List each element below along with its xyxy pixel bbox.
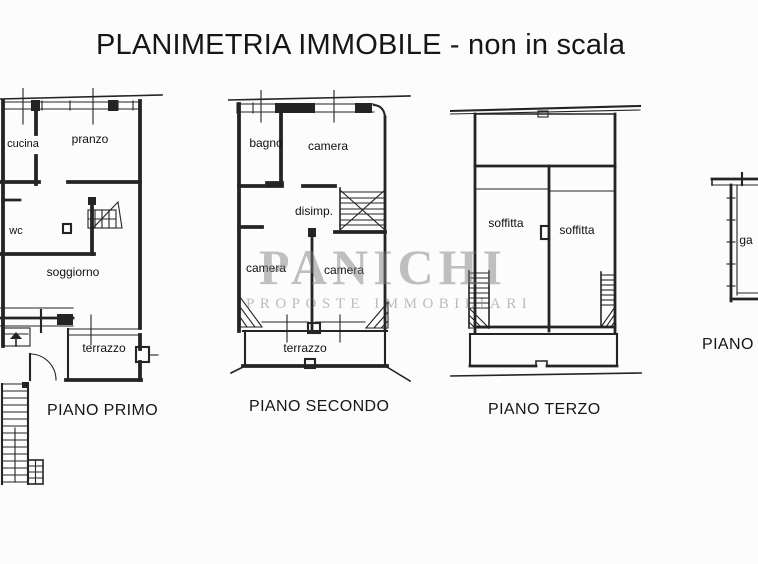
room-label-garage-partial: ga: [739, 233, 753, 247]
room-label-terrazzo-2: terrazzo: [283, 341, 327, 355]
window-band: [4, 88, 140, 124]
floor-plan-piano-primo: cucina pranzo wc soggiorno terrazzo: [0, 88, 168, 490]
room-label-soffitta-left: soffitta: [488, 216, 523, 230]
room-label-soggiorno: soggiorno: [47, 265, 100, 279]
external-staircase: [2, 382, 43, 484]
floor-label-piano-secondo: PIANO SECONDO: [249, 398, 389, 416]
room-label-cucina: cucina: [7, 138, 40, 150]
roof-line: [0, 95, 162, 99]
staircase-left: [469, 271, 489, 328]
floor-label-piano-primo: PIANO PRIMO: [47, 402, 158, 420]
floor-plan-piano-secondo: bagno camera disimp. camera camera terra…: [228, 90, 412, 392]
staircase: [340, 188, 385, 231]
room-label-camera-top: camera: [308, 139, 348, 153]
door-swing-arc: [30, 354, 56, 380]
terrace-walls: [0, 308, 158, 380]
room-label-disimpegno: disimp.: [295, 204, 333, 218]
page-title: PLANIMETRIA IMMOBILE - non in scala: [96, 29, 625, 62]
room-label-wc: wc: [8, 225, 23, 237]
floor-label-piano-terzo: PIANO TERZO: [488, 401, 601, 419]
window-band: [237, 90, 374, 122]
balcony: [450, 334, 642, 376]
floorplan-document: { "title": "PLANIMETRIA IMMOBILE - non i…: [0, 0, 758, 564]
room-label-soffitta-right: soffitta: [559, 223, 594, 237]
room-label-camera-right: camera: [324, 263, 364, 277]
roof-line: [450, 106, 640, 117]
room-label-bagno: bagno: [249, 136, 283, 150]
room-label-camera-left: camera: [246, 261, 286, 275]
floor-label-piano-terra: PIANO T: [702, 336, 758, 354]
entry-arrow-icon: [2, 328, 30, 346]
staircase-right: [601, 272, 615, 327]
room-label-pranzo: pranzo: [72, 132, 109, 146]
floor-plan-piano-terzo: soffitta soffitta: [450, 95, 642, 387]
floor-plan-piano-terra-partial: ga: [700, 168, 758, 316]
room-label-terrazzo: terrazzo: [82, 341, 126, 355]
roof-line: [228, 96, 410, 100]
